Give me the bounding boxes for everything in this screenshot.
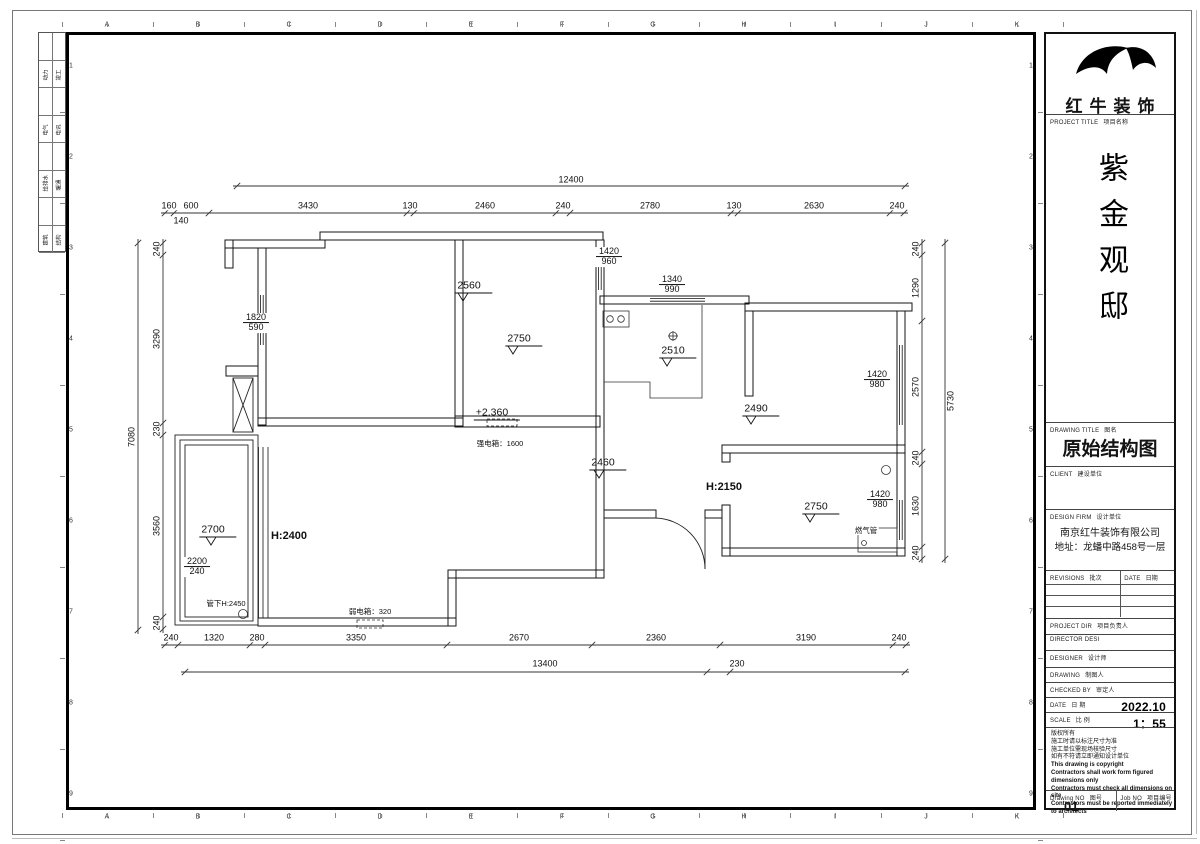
field-date: DATE日 期 2022.10	[1046, 697, 1174, 712]
dim-overall-right: 5730	[946, 390, 955, 412]
dim-overall-left: 7080	[127, 426, 136, 448]
level-label: 2460	[589, 457, 626, 470]
level-label: 2700	[199, 524, 236, 537]
under-pipe-height-label: 管下H:2450	[205, 600, 246, 608]
dim-right: 240	[911, 449, 920, 466]
dim-right: 240	[911, 240, 920, 257]
project-name: 紫金观邸	[1046, 134, 1174, 354]
dim-top: 240	[554, 201, 571, 210]
gas-pipe-label: 燃气管	[854, 527, 879, 535]
drawing-title-label: DRAWING TITLE图名	[1046, 422, 1174, 434]
strong-electric-box-label: 强电箱：1600	[476, 440, 525, 448]
dim-bottom: 230	[728, 659, 745, 668]
field-project-dir: PROJECT DIR项目负责人	[1046, 618, 1174, 634]
design-firm-address: 地址：龙蟠中路458号一层	[1046, 539, 1174, 553]
level-label: 2750	[802, 501, 839, 514]
field-checked-by: CHECKED BY审定人	[1046, 682, 1174, 697]
design-firm-name: 南京红牛装饰有限公司	[1046, 524, 1174, 539]
dim-top: 2780	[639, 201, 661, 210]
revision-row	[1046, 595, 1174, 606]
level-label: 2750	[505, 333, 542, 346]
copyright-line: 施工时请以标注尺寸为准	[1051, 739, 1174, 747]
dim-left: 240	[152, 614, 161, 631]
window-label: 1340990	[658, 275, 686, 295]
dim-top: 140	[172, 216, 189, 225]
dim-bottom: 2670	[508, 633, 530, 642]
field-scale: SCALE比 例 1：55	[1046, 712, 1174, 727]
dim-overall-bottom: 13400	[531, 659, 558, 668]
field-drawing: DRAWING制图人	[1046, 667, 1174, 682]
level-label: 2560	[455, 280, 492, 293]
dim-right: 240	[911, 544, 920, 561]
copyright-line: This drawing is copyright	[1051, 762, 1174, 770]
drawing-no-value: 01	[1064, 799, 1078, 814]
level-label: 2490	[742, 403, 779, 416]
dim-bottom: 1320	[203, 633, 225, 642]
dim-top: 130	[401, 201, 418, 210]
copyright-notes: 版权所有施工时请以标注尺寸为准施工单位需现场核验尺寸如有不符请立即通知设计单位T…	[1046, 727, 1174, 790]
client-label: CLIENT建设单位	[1046, 466, 1174, 478]
revisions-header: REVISIONS批次 DATE日期	[1046, 570, 1174, 584]
dim-top: 3430	[297, 201, 319, 210]
dim-right: 1630	[911, 495, 920, 517]
height-label: H:2150	[705, 482, 743, 494]
page: { "page": { "ruler_letters": ["A","B","C…	[0, 0, 1200, 844]
copyright-line: 版权所有	[1051, 731, 1174, 739]
weak-electric-box-label: 弱电箱：320	[348, 608, 393, 616]
dim-left: 3290	[152, 328, 161, 350]
drawing-title: 原始结构图	[1046, 434, 1174, 461]
design-firm-label: DESIGN FIRM设计单位	[1046, 509, 1174, 521]
project-title-label: PROJECT TITLE项目名称	[1046, 114, 1174, 126]
window-label: 1420980	[866, 490, 894, 510]
window-label: 1420980	[863, 370, 891, 390]
dim-bottom: 240	[890, 633, 907, 642]
dim-bottom: 3350	[345, 633, 367, 642]
revision-row	[1046, 584, 1174, 595]
height-label: H:2400	[270, 531, 308, 543]
dim-left: 230	[152, 420, 161, 437]
window-label: 2200240	[183, 557, 211, 577]
window-label: 1820590	[242, 313, 270, 333]
plan-labels: 1240016060034301302460240278013026302401…	[0, 0, 1200, 844]
title-block: 红牛装饰 PROJECT TITLE项目名称 紫金观邸 DRAWING TITL…	[1044, 32, 1176, 810]
dim-overall-top: 12400	[557, 175, 584, 184]
dim-bottom: 240	[162, 633, 179, 642]
drawing-no-section: Drawing NO图号 Job NO项目编号 01	[1046, 790, 1174, 810]
revision-row	[1046, 606, 1174, 617]
field-designer: DESIGNER设计师	[1046, 650, 1174, 667]
level-label: 2510	[659, 345, 696, 358]
dim-left: 240	[152, 240, 161, 257]
dim-top: 160	[160, 201, 177, 210]
copyright-line: 如有不符请立即通知设计单位	[1051, 754, 1174, 762]
copyright-line: Contractors shall work form figured dime…	[1051, 770, 1174, 786]
dim-top: 2630	[803, 201, 825, 210]
dim-top: 240	[888, 201, 905, 210]
dim-left: 3560	[152, 515, 161, 537]
dim-bottom: 3190	[795, 633, 817, 642]
dim-top: 130	[725, 201, 742, 210]
window-label: 1420960	[595, 247, 623, 267]
dim-bottom: 2360	[645, 633, 667, 642]
company-logo-icon	[1068, 36, 1158, 90]
dim-top: 2460	[474, 201, 496, 210]
dim-right: 1290	[911, 277, 920, 299]
level-label: +2.360	[474, 407, 520, 420]
dim-top: 600	[182, 201, 199, 210]
dim-right: 2570	[911, 376, 920, 398]
field-director: DIRECTOR DESI	[1046, 634, 1174, 650]
dim-bottom: 280	[248, 633, 265, 642]
